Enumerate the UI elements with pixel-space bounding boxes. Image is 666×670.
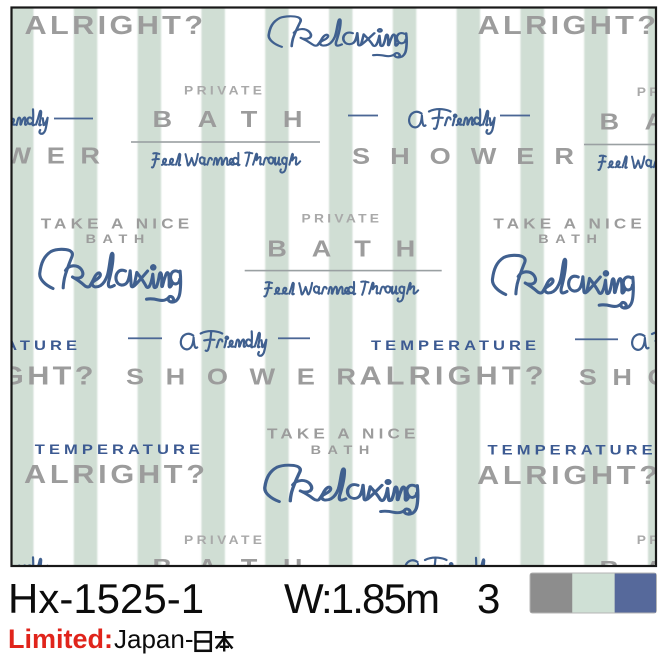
svg-text:TEMPERATURE: TEMPERATURE bbox=[371, 338, 536, 354]
svg-text:PRIVATE: PRIVATE bbox=[637, 85, 666, 99]
svg-text:TAKE A NICE: TAKE A NICE bbox=[41, 217, 189, 233]
svg-text:PRIVATE: PRIVATE bbox=[184, 84, 263, 98]
svg-text:Japan-: Japan- bbox=[114, 624, 194, 654]
svg-text:TEMPERATURE: TEMPERATURE bbox=[488, 443, 653, 459]
svg-text:W:1.85m: W:1.85m bbox=[284, 575, 440, 622]
svg-text:PRIVATE: PRIVATE bbox=[302, 211, 380, 225]
svg-text:TAKE A NICE: TAKE A NICE bbox=[267, 427, 415, 443]
svg-text:PRIVATE: PRIVATE bbox=[637, 533, 666, 547]
svg-text:3: 3 bbox=[477, 575, 500, 622]
svg-text:Hx-1525-1: Hx-1525-1 bbox=[8, 575, 204, 622]
svg-text:ALRIGHT?: ALRIGHT? bbox=[25, 11, 204, 40]
svg-text:PRIVATE: PRIVATE bbox=[184, 533, 263, 547]
svg-text:ALRIGHT?: ALRIGHT? bbox=[0, 362, 94, 391]
svg-text:ALRIGHT?: ALRIGHT? bbox=[477, 461, 658, 490]
svg-text:SHOWER: SHOWER bbox=[579, 365, 666, 391]
svg-text:BATH: BATH bbox=[538, 232, 597, 246]
svg-text:ALRIGHT?: ALRIGHT? bbox=[24, 460, 205, 489]
svg-text:ALRIGHT?: ALRIGHT? bbox=[478, 11, 657, 40]
svg-text:Limited:: Limited: bbox=[8, 624, 113, 654]
svg-text:TAKE A NICE: TAKE A NICE bbox=[493, 217, 641, 233]
svg-text:BATH: BATH bbox=[86, 232, 145, 246]
svg-text:TEMPERATURE: TEMPERATURE bbox=[35, 442, 200, 458]
svg-text:SHOWER: SHOWER bbox=[0, 143, 100, 169]
svg-text:ALRIGHT?: ALRIGHT? bbox=[360, 362, 544, 391]
